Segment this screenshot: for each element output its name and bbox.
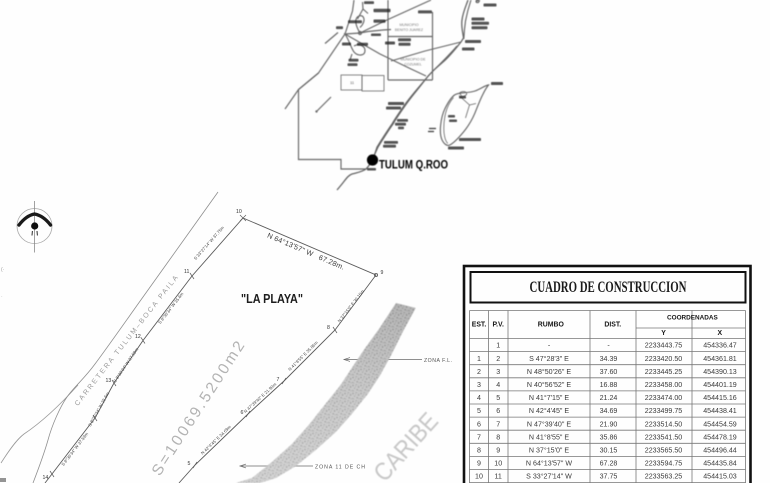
svg-text:P.V.: P.V. xyxy=(492,321,504,328)
svg-text:16.88: 16.88 xyxy=(600,381,618,389)
svg-text:N 42°4'45" E: N 42°4'45" E xyxy=(529,407,569,415)
svg-text:N 42°4'45" E 34.69m: N 42°4'45" E 34.69m xyxy=(200,424,232,456)
svg-text:·: · xyxy=(1,294,3,300)
svg-text:454336.47: 454336.47 xyxy=(703,342,737,350)
svg-text:S 47°28'3" E: S 47°28'3" E xyxy=(529,355,569,363)
svg-text:454390.13: 454390.13 xyxy=(703,368,737,376)
svg-text:454361.81: 454361.81 xyxy=(703,355,737,363)
svg-text:N 41°8'55" E 35.86m: N 41°8'55" E 35.86m xyxy=(287,340,319,372)
svg-text:N 48°50'26" E: N 48°50'26" E xyxy=(527,368,571,376)
svg-text:454478.19: 454478.19 xyxy=(703,433,737,441)
svg-text:RUMBO: RUMBO xyxy=(538,321,565,328)
svg-text:5: 5 xyxy=(477,407,481,415)
svg-text:N 41°8'55" E: N 41°8'55" E xyxy=(529,433,569,441)
svg-text:3: 3 xyxy=(477,381,481,389)
svg-text:2233420.50: 2233420.50 xyxy=(645,355,683,363)
svg-text:11: 11 xyxy=(495,473,502,481)
svg-text:-: - xyxy=(607,342,610,350)
svg-text:5: 5 xyxy=(188,461,191,467)
svg-text:(·: (· xyxy=(1,267,5,273)
svg-text:454435.84: 454435.84 xyxy=(703,460,737,468)
svg-text:454401.19: 454401.19 xyxy=(703,381,737,389)
svg-text:2233499.75: 2233499.75 xyxy=(645,407,683,415)
svg-text:10: 10 xyxy=(236,209,242,215)
svg-text:2233514.50: 2233514.50 xyxy=(645,420,683,428)
svg-text:2233541.50: 2233541.50 xyxy=(645,433,683,441)
svg-text:S 33°27'14" W 37.75m: S 33°27'14" W 37.75m xyxy=(193,225,226,261)
svg-text:1: 1 xyxy=(477,355,481,363)
svg-text:7: 7 xyxy=(277,377,280,383)
svg-text:N 41°7'15" E: N 41°7'15" E xyxy=(529,394,569,402)
svg-text:X: X xyxy=(717,330,722,337)
svg-text:37.60: 37.60 xyxy=(600,368,618,376)
svg-text:N 37°15'0" E 30.15m: N 37°15'0" E 30.15m xyxy=(337,288,366,323)
svg-text:COORDENADAS: COORDENADAS xyxy=(667,315,719,322)
svg-text:TULUM Q.ROO: TULUM Q.ROO xyxy=(379,158,448,172)
svg-text:N 64°13'57" W: N 64°13'57" W xyxy=(526,460,572,468)
svg-text:8: 8 xyxy=(327,325,330,331)
svg-text:2233443.75: 2233443.75 xyxy=(645,342,683,350)
svg-text:454454.59: 454454.59 xyxy=(703,420,737,428)
svg-text:6: 6 xyxy=(496,407,500,415)
svg-text:"LA PLAYA": "LA PLAYA" xyxy=(241,291,303,306)
svg-text:CUADRO DE CONSTRUCCION: CUADRO DE CONSTRUCCION xyxy=(530,279,687,296)
svg-text:9: 9 xyxy=(381,270,384,276)
svg-text:MUNICIPIO DE: MUNICIPIO DE xyxy=(401,58,427,62)
svg-text:S 8°30'34" W 37.59m: S 8°30'34" W 37.59m xyxy=(60,431,89,467)
svg-text:N 47°39'40" E 21.90m: N 47°39'40" E 21.90m xyxy=(243,381,278,414)
svg-text:4: 4 xyxy=(496,381,500,389)
svg-text:3: 3 xyxy=(496,368,500,376)
svg-text:11: 11 xyxy=(184,269,189,275)
svg-text:8: 8 xyxy=(477,447,481,455)
svg-text:454496.44: 454496.44 xyxy=(703,447,737,455)
svg-text:2233563.25: 2233563.25 xyxy=(645,473,683,481)
svg-text:2233458.00: 2233458.00 xyxy=(645,381,683,389)
svg-text:N 40°56'52" E: N 40°56'52" E xyxy=(527,381,571,389)
svg-text:CARIBE: CARIBE xyxy=(368,407,444,483)
svg-text:N 47°39'40" E: N 47°39'40" E xyxy=(527,420,571,428)
svg-text:S 8°30'34" W 35.6m: S 8°30'34" W 35.6m xyxy=(87,391,110,427)
svg-text:Y: Y xyxy=(661,330,666,337)
svg-text:MUNICIPIO: MUNICIPIO xyxy=(400,23,419,27)
svg-text:14: 14 xyxy=(43,475,49,481)
svg-text:13: 13 xyxy=(106,378,112,384)
svg-text:34.69: 34.69 xyxy=(600,407,618,415)
svg-text:30.15: 30.15 xyxy=(600,447,618,455)
svg-text:454415.03: 454415.03 xyxy=(703,473,737,481)
svg-text:8: 8 xyxy=(496,433,500,441)
svg-text:9: 9 xyxy=(477,460,481,468)
svg-text:4: 4 xyxy=(477,394,481,402)
svg-text:6: 6 xyxy=(477,420,481,428)
svg-text:ZONA 11 DE CH: ZONA 11 DE CH xyxy=(315,465,365,471)
svg-text:34.39: 34.39 xyxy=(600,355,618,363)
svg-text:N 64°13'57" W 67.28m.: N 64°13'57" W 67.28m. xyxy=(266,231,346,272)
svg-text:N 37°15'0" E: N 37°15'0" E xyxy=(529,447,569,455)
svg-text:454415.16: 454415.16 xyxy=(703,394,737,402)
svg-text:CARRETERA TULUM–BOCA PAILA: CARRETERA TULUM–BOCA PAILA xyxy=(74,274,180,407)
svg-text:DIST.: DIST. xyxy=(604,321,621,328)
svg-text:2233594.75: 2233594.75 xyxy=(645,460,683,468)
svg-text:37.75: 37.75 xyxy=(600,473,618,481)
svg-text:S 33°27'14" W: S 33°27'14" W xyxy=(526,473,572,481)
svg-text:11: 11 xyxy=(350,80,355,85)
svg-text:7: 7 xyxy=(477,433,481,441)
svg-text:21.90: 21.90 xyxy=(600,420,618,428)
svg-text:EST.: EST. xyxy=(472,321,487,328)
svg-text:2233565.50: 2233565.50 xyxy=(645,447,683,455)
svg-text:67.28: 67.28 xyxy=(600,460,618,468)
svg-text:2233474.00: 2233474.00 xyxy=(645,394,683,402)
svg-text:10: 10 xyxy=(494,460,502,468)
svg-text:ZONA F.L.: ZONA F.L. xyxy=(424,358,452,364)
svg-text:1: 1 xyxy=(496,342,500,350)
svg-text:7: 7 xyxy=(496,420,500,428)
svg-text:9: 9 xyxy=(496,447,500,455)
svg-text:2233445.25: 2233445.25 xyxy=(645,368,683,376)
svg-text:2: 2 xyxy=(496,355,500,363)
svg-text:21.24: 21.24 xyxy=(600,394,618,402)
svg-text:COZUMEL: COZUMEL xyxy=(404,63,422,67)
svg-text:5: 5 xyxy=(496,394,500,402)
svg-text:10: 10 xyxy=(475,473,483,481)
svg-text:35.86: 35.86 xyxy=(600,433,618,441)
svg-text:-: - xyxy=(548,342,551,350)
svg-text:S=10069.5200m2: S=10069.5200m2 xyxy=(149,336,250,479)
svg-text:2: 2 xyxy=(477,368,481,376)
svg-text:454438.41: 454438.41 xyxy=(703,407,737,415)
svg-text:BENITO JUAREZ: BENITO JUAREZ xyxy=(395,28,424,32)
